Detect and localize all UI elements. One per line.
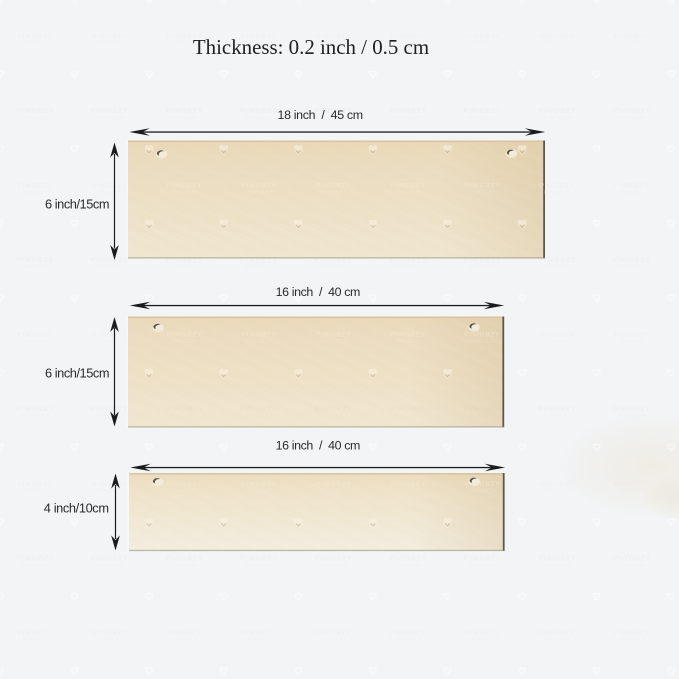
svg-text:PIWGBZY: PIWGBZY	[240, 406, 278, 413]
svg-text:PIWGBZY: PIWGBZY	[171, 339, 198, 345]
svg-text:PIWGBZY: PIWGBZY	[167, 630, 203, 637]
svg-text:PIWGBZY: PIWGBZY	[21, 414, 49, 420]
svg-text:PIWGBZY: PIWGBZY	[613, 257, 651, 264]
svg-text:PIWGBZY: PIWGBZY	[395, 190, 422, 196]
svg-text:PIWGBZY: PIWGBZY	[91, 108, 129, 115]
svg-text:PIWGBZY: PIWGBZY	[613, 108, 651, 115]
svg-text:PIWGBZY: PIWGBZY	[21, 563, 49, 569]
svg-text:PIWGBZY: PIWGBZY	[613, 555, 651, 562]
svg-text:PIWGBZY: PIWGBZY	[543, 115, 571, 121]
svg-text:PIWGBZY: PIWGBZY	[321, 638, 347, 644]
svg-text:PIWGBZY: PIWGBZY	[170, 414, 198, 420]
svg-text:PIWGBZY: PIWGBZY	[543, 414, 571, 420]
svg-text:PIWGBZY: PIWGBZY	[543, 563, 571, 569]
svg-text:PIWGBZY: PIWGBZY	[543, 265, 571, 271]
svg-text:PIWGBZY: PIWGBZY	[618, 414, 646, 420]
svg-text:PIWGBZY: PIWGBZY	[96, 563, 124, 569]
svg-text:PIWGBZY: PIWGBZY	[97, 190, 123, 196]
svg-text:PIWGBZY: PIWGBZY	[469, 265, 497, 271]
svg-text:PIWGBZY: PIWGBZY	[544, 190, 570, 196]
svg-text:PIWGBZY: PIWGBZY	[246, 488, 273, 494]
svg-text:PIWGBZY: PIWGBZY	[470, 638, 496, 644]
svg-text:PIWGBZY: PIWGBZY	[469, 414, 497, 420]
svg-text:PIWGBZY: PIWGBZY	[619, 638, 645, 644]
svg-text:PIWGBZY: PIWGBZY	[245, 563, 273, 569]
svg-text:PIWGBZY: PIWGBZY	[165, 555, 203, 562]
svg-text:PIWGBZY: PIWGBZY	[245, 115, 273, 121]
svg-text:PIWGBZY: PIWGBZY	[540, 630, 576, 637]
svg-text:PIWGBZY: PIWGBZY	[395, 339, 422, 345]
svg-text:PIWGBZY: PIWGBZY	[165, 406, 203, 413]
svg-text:PIWGBZY: PIWGBZY	[619, 41, 645, 47]
svg-text:PIWGBZY: PIWGBZY	[320, 488, 347, 494]
svg-text:PIWGBZY: PIWGBZY	[394, 265, 422, 271]
svg-text:PIWGBZY: PIWGBZY	[538, 406, 576, 413]
svg-text:PIWGBZY: PIWGBZY	[619, 190, 645, 196]
svg-text:PIWGBZY: PIWGBZY	[538, 257, 576, 264]
svg-text:PIWGBZY: PIWGBZY	[544, 41, 570, 47]
svg-text:PIWGBZY: PIWGBZY	[22, 190, 48, 196]
svg-text:PIWGBZY: PIWGBZY	[464, 406, 502, 413]
svg-text:PIWGBZY: PIWGBZY	[614, 182, 650, 189]
svg-text:PIWGBZY: PIWGBZY	[469, 190, 496, 196]
svg-text:PIWGBZY: PIWGBZY	[171, 190, 198, 196]
svg-text:PIWGBZY: PIWGBZY	[170, 265, 198, 271]
svg-text:PIWGBZY: PIWGBZY	[465, 630, 501, 637]
svg-text:PIWGBZY: PIWGBZY	[469, 488, 496, 494]
svg-text:PIWGBZY: PIWGBZY	[22, 638, 48, 644]
svg-text:PIWGBZY: PIWGBZY	[17, 630, 53, 637]
svg-text:PIWGBZY: PIWGBZY	[614, 630, 650, 637]
svg-text:PIWGBZY: PIWGBZY	[320, 190, 347, 196]
svg-text:PIWGBZY: PIWGBZY	[246, 190, 273, 196]
svg-text:PIWGBZY: PIWGBZY	[22, 339, 48, 345]
svg-text:18 inch / 45 cm: 18 inch / 45 cm	[278, 108, 364, 122]
svg-text:PIWGBZY: PIWGBZY	[464, 108, 502, 115]
svg-text:PIWGBZY: PIWGBZY	[470, 41, 496, 47]
svg-text:PIWGBZY: PIWGBZY	[389, 257, 427, 264]
svg-text:PIWGBZY: PIWGBZY	[97, 41, 123, 47]
svg-text:PIWGBZY: PIWGBZY	[544, 638, 570, 644]
svg-text:PIWGBZY: PIWGBZY	[91, 257, 129, 264]
svg-text:PIWGBZY: PIWGBZY	[21, 115, 49, 121]
svg-text:PIWGBZY: PIWGBZY	[245, 414, 273, 420]
svg-text:PIWGBZY: PIWGBZY	[538, 108, 576, 115]
svg-text:PIWGBZY: PIWGBZY	[315, 257, 353, 264]
svg-text:PIWGBZY: PIWGBZY	[320, 339, 347, 345]
svg-text:PIWGBZY: PIWGBZY	[16, 257, 54, 264]
svg-text:PIWGBZY: PIWGBZY	[320, 414, 348, 420]
svg-text:PIWGBZY: PIWGBZY	[97, 339, 123, 345]
svg-text:PIWGBZY: PIWGBZY	[22, 41, 48, 47]
svg-text:PIWGBZY: PIWGBZY	[395, 638, 421, 644]
svg-text:PIWGBZY: PIWGBZY	[465, 33, 501, 40]
svg-text:PIWGBZY: PIWGBZY	[16, 406, 54, 413]
svg-text:PIWGBZY: PIWGBZY	[245, 265, 273, 271]
svg-text:PIWGBZY: PIWGBZY	[240, 555, 278, 562]
svg-text:PIWGBZY: PIWGBZY	[96, 115, 124, 121]
svg-text:PIWGBZY: PIWGBZY	[619, 339, 645, 345]
svg-text:PIWGBZY: PIWGBZY	[316, 332, 352, 339]
svg-text:PIWGBZY: PIWGBZY	[465, 182, 501, 189]
svg-text:PIWGBZY: PIWGBZY	[394, 563, 422, 569]
svg-text:PIWGBZY: PIWGBZY	[165, 108, 203, 115]
svg-text:PIWGBZY: PIWGBZY	[394, 414, 422, 420]
svg-text:PIWGBZY: PIWGBZY	[390, 630, 426, 637]
svg-text:6 inch/15cm: 6 inch/15cm	[45, 197, 110, 212]
svg-text:PIWGBZY: PIWGBZY	[618, 563, 646, 569]
svg-text:PIWGBZY: PIWGBZY	[316, 630, 352, 637]
svg-text:PIWGBZY: PIWGBZY	[92, 33, 128, 40]
svg-text:PIWGBZY: PIWGBZY	[320, 563, 348, 569]
svg-text:4 inch/10cm: 4 inch/10cm	[44, 501, 109, 516]
svg-text:PIWGBZY: PIWGBZY	[389, 555, 427, 562]
svg-text:PIWGBZY: PIWGBZY	[613, 406, 651, 413]
svg-text:PIWGBZY: PIWGBZY	[315, 406, 353, 413]
svg-text:PIWGBZY: PIWGBZY	[389, 108, 427, 115]
svg-text:PIWGBZY: PIWGBZY	[92, 332, 128, 339]
svg-text:PIWGBZY: PIWGBZY	[315, 555, 353, 562]
svg-text:6 inch/15cm: 6 inch/15cm	[45, 366, 110, 381]
svg-text:16 inch / 40 cm: 16 inch / 40 cm	[276, 285, 361, 299]
svg-text:PIWGBZY: PIWGBZY	[614, 332, 650, 339]
svg-text:PIWGBZY: PIWGBZY	[167, 481, 203, 488]
svg-text:16 inch / 40 cm: 16 inch / 40 cm	[276, 439, 361, 453]
svg-text:PIWGBZY: PIWGBZY	[17, 332, 53, 339]
svg-text:PIWGBZY: PIWGBZY	[241, 630, 277, 637]
svg-text:PIWGBZY: PIWGBZY	[540, 33, 576, 40]
svg-text:PIWGBZY: PIWGBZY	[246, 339, 273, 345]
svg-text:PIWGBZY: PIWGBZY	[91, 555, 129, 562]
svg-text:PIWGBZY: PIWGBZY	[390, 182, 426, 189]
svg-text:PIWGBZY: PIWGBZY	[241, 182, 277, 189]
svg-text:PIWGBZY: PIWGBZY	[544, 339, 570, 345]
svg-text:PIWGBZY: PIWGBZY	[540, 481, 576, 488]
svg-text:PIWGBZY: PIWGBZY	[240, 108, 278, 115]
svg-text:PIWGBZY: PIWGBZY	[389, 406, 427, 413]
svg-text:PIWGBZY: PIWGBZY	[540, 332, 576, 339]
svg-text:PIWGBZY: PIWGBZY	[92, 630, 128, 637]
svg-text:PIWGBZY: PIWGBZY	[320, 265, 348, 271]
svg-text:PIWGBZY: PIWGBZY	[316, 481, 352, 488]
svg-text:PIWGBZY: PIWGBZY	[92, 182, 128, 189]
svg-text:PIWGBZY: PIWGBZY	[96, 265, 124, 271]
svg-text:PIWGBZY: PIWGBZY	[469, 563, 497, 569]
svg-text:PIWGBZY: PIWGBZY	[167, 332, 203, 339]
svg-text:PIWGBZY: PIWGBZY	[394, 115, 422, 121]
svg-text:PIWGBZY: PIWGBZY	[246, 638, 272, 644]
svg-text:PIWGBZY: PIWGBZY	[390, 332, 426, 339]
svg-text:PIWGBZY: PIWGBZY	[390, 481, 426, 488]
svg-text:PIWGBZY: PIWGBZY	[165, 257, 203, 264]
svg-text:PIWGBZY: PIWGBZY	[96, 414, 124, 420]
svg-text:PIWGBZY: PIWGBZY	[17, 182, 53, 189]
svg-text:PIWGBZY: PIWGBZY	[170, 115, 198, 121]
svg-text:PIWGBZY: PIWGBZY	[171, 488, 198, 494]
svg-text:PIWGBZY: PIWGBZY	[171, 638, 197, 644]
svg-text:PIWGBZY: PIWGBZY	[240, 257, 278, 264]
svg-text:PIWGBZY: PIWGBZY	[97, 488, 123, 494]
svg-text:PIWGBZY: PIWGBZY	[17, 481, 53, 488]
svg-text:PIWGBZY: PIWGBZY	[469, 339, 496, 345]
svg-text:PIWGBZY: PIWGBZY	[614, 33, 650, 40]
svg-text:PIWGBZY: PIWGBZY	[16, 555, 54, 562]
svg-text:PIWGBZY: PIWGBZY	[167, 182, 203, 189]
svg-text:PIWGBZY: PIWGBZY	[97, 638, 123, 644]
svg-text:PIWGBZY: PIWGBZY	[464, 257, 502, 264]
svg-text:PIWGBZY: PIWGBZY	[618, 115, 646, 121]
svg-text:PIWGBZY: PIWGBZY	[469, 115, 497, 121]
svg-text:PIWGBZY: PIWGBZY	[465, 332, 501, 339]
svg-text:PIWGBZY: PIWGBZY	[21, 265, 49, 271]
svg-text:PIWGBZY: PIWGBZY	[91, 406, 129, 413]
svg-text:PIWGBZY: PIWGBZY	[618, 265, 646, 271]
svg-text:PIWGBZY: PIWGBZY	[170, 563, 198, 569]
svg-text:PIWGBZY: PIWGBZY	[16, 108, 54, 115]
svg-text:PIWGBZY: PIWGBZY	[17, 33, 53, 40]
svg-text:PIWGBZY: PIWGBZY	[614, 481, 650, 488]
svg-text:PIWGBZY: PIWGBZY	[316, 182, 352, 189]
svg-text:PIWGBZY: PIWGBZY	[395, 488, 422, 494]
svg-text:Thickness: 0.2 inch / 0.5 cm: Thickness: 0.2 inch / 0.5 cm	[193, 35, 429, 59]
svg-text:PIWGBZY: PIWGBZY	[544, 488, 570, 494]
svg-text:PIWGBZY: PIWGBZY	[464, 555, 502, 562]
svg-text:PIWGBZY: PIWGBZY	[538, 555, 576, 562]
svg-text:PIWGBZY: PIWGBZY	[241, 481, 277, 488]
svg-text:PIWGBZY: PIWGBZY	[22, 488, 48, 494]
svg-text:PIWGBZY: PIWGBZY	[619, 488, 645, 494]
svg-text:PIWGBZY: PIWGBZY	[92, 481, 128, 488]
svg-text:PIWGBZY: PIWGBZY	[241, 332, 277, 339]
